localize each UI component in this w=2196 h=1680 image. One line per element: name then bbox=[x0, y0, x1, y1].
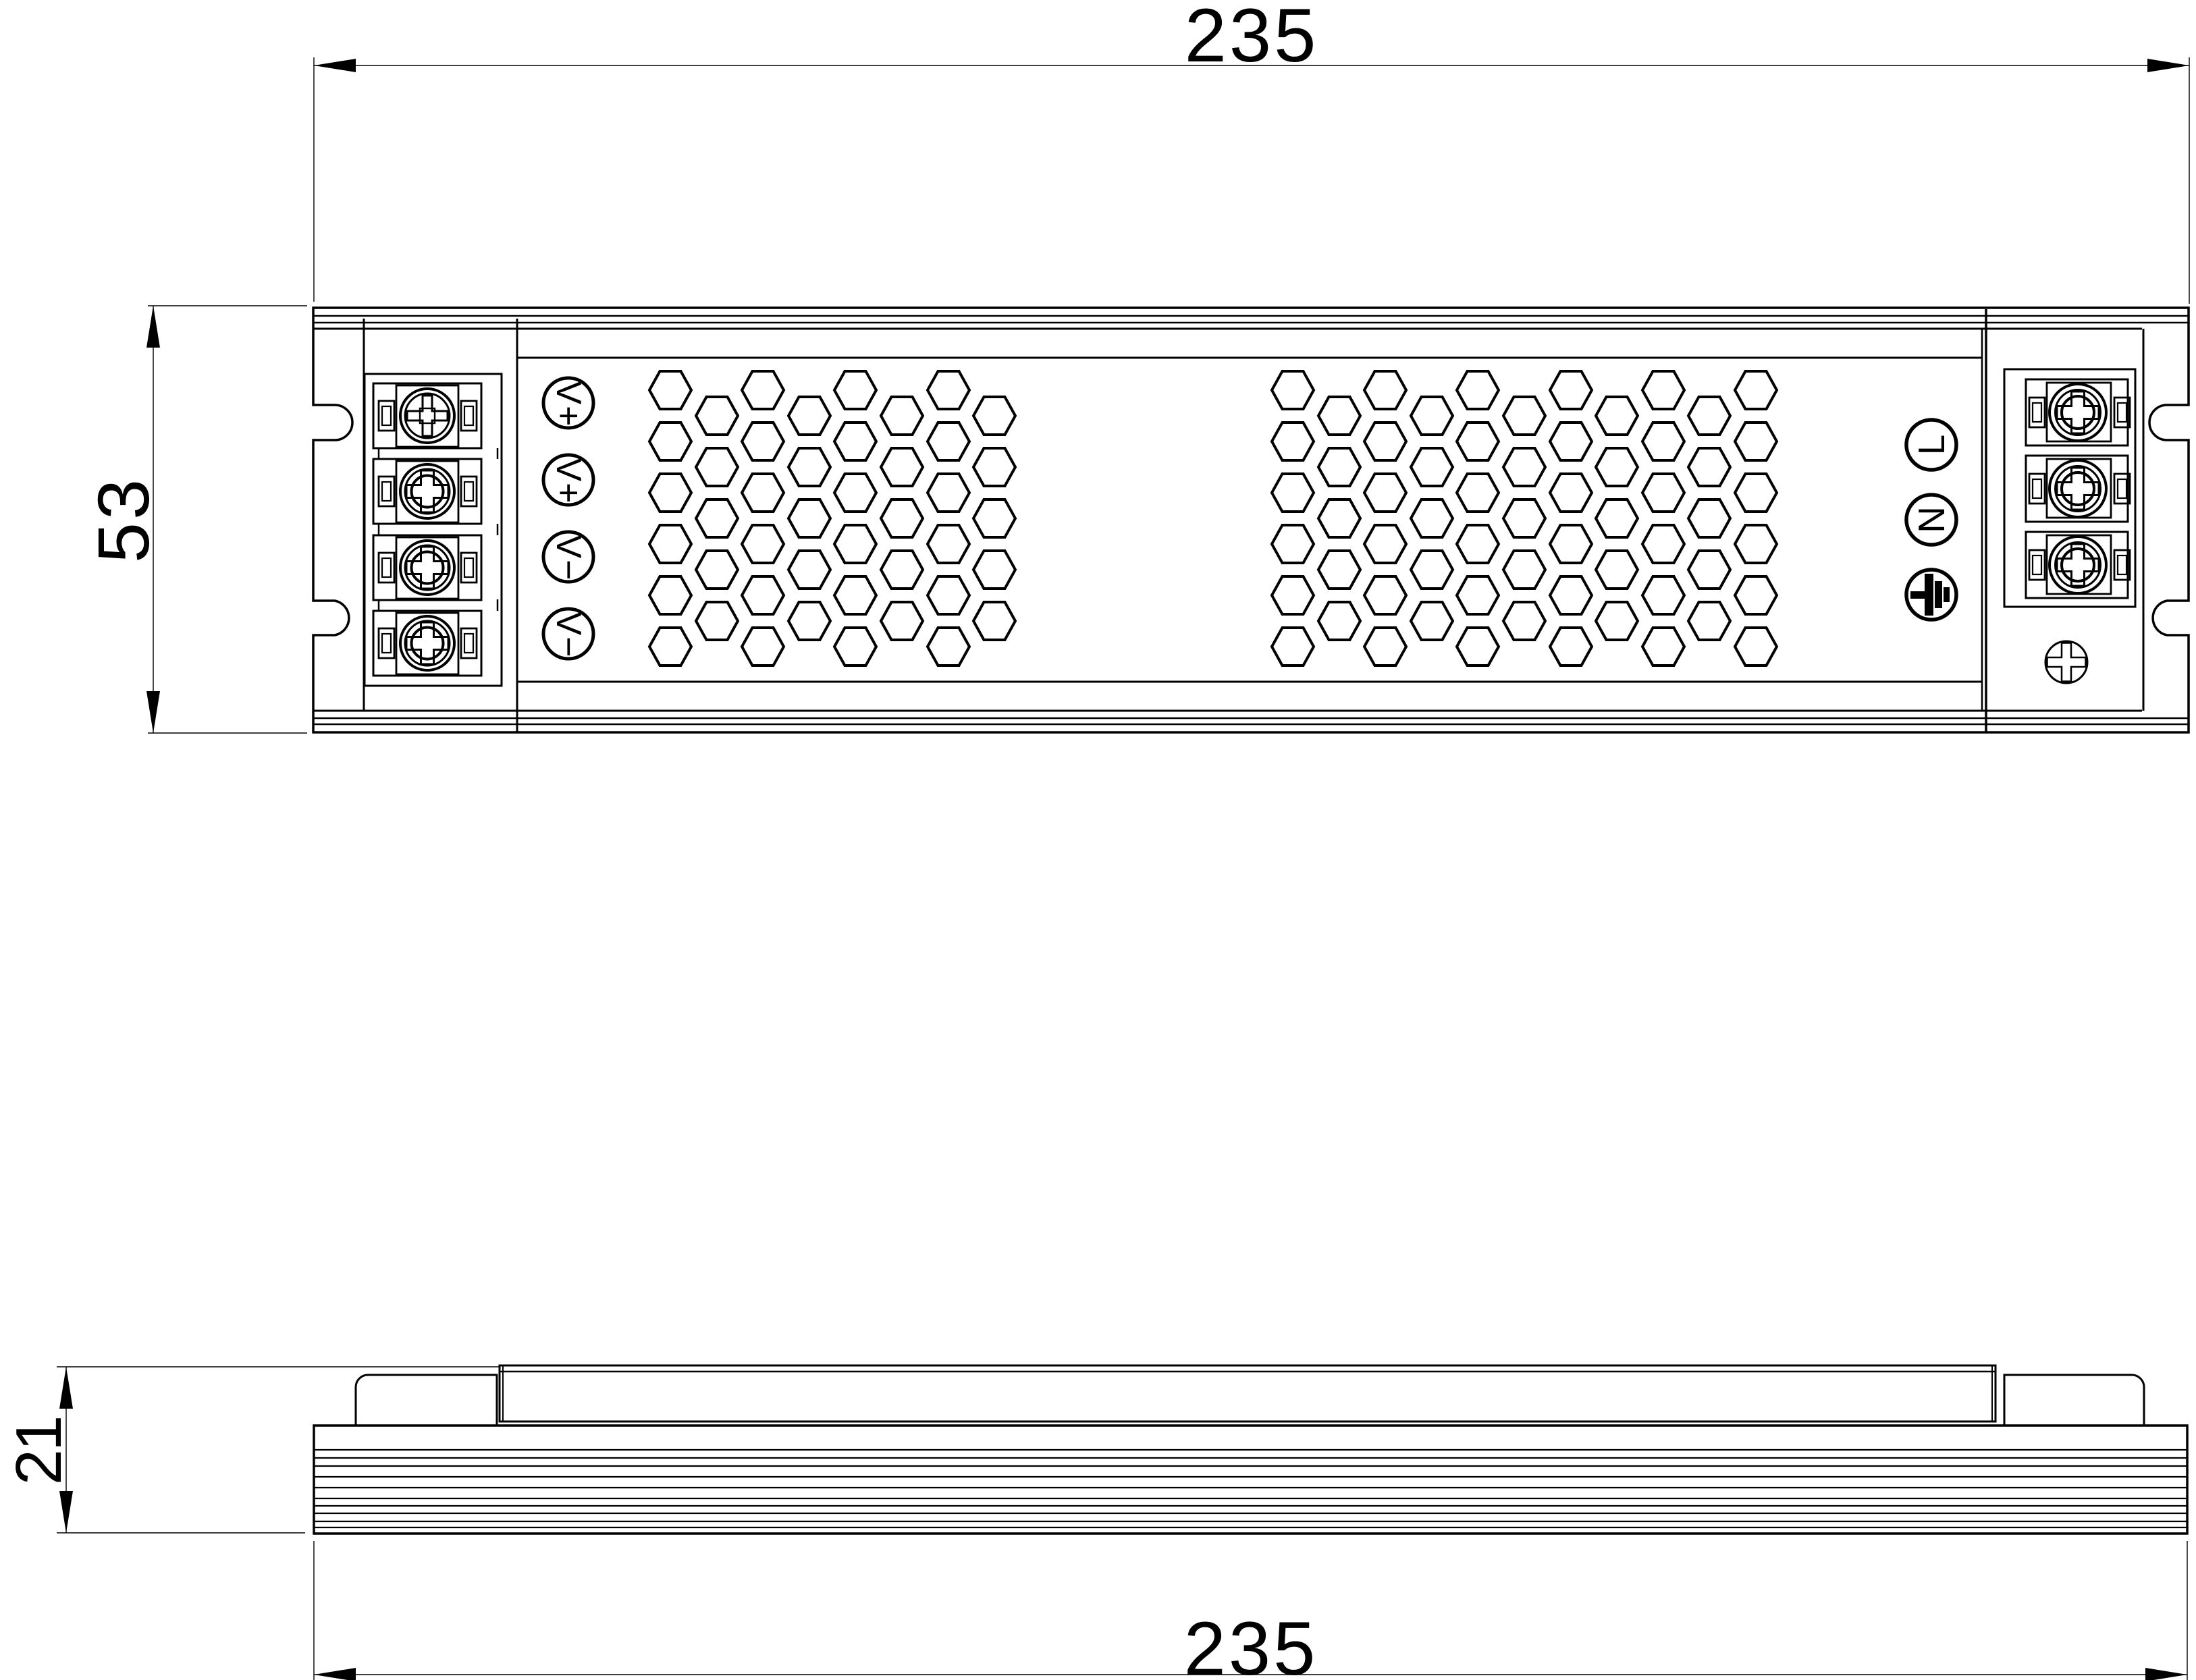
svg-text:235: 235 bbox=[1185, 0, 1319, 78]
svg-text:235: 235 bbox=[1184, 1606, 1318, 1680]
svg-text:V−: V− bbox=[549, 535, 588, 581]
svg-text:V−: V− bbox=[549, 612, 588, 658]
svg-text:N: N bbox=[1910, 506, 1952, 533]
svg-text:53: 53 bbox=[82, 477, 164, 563]
svg-text:V+: V+ bbox=[549, 381, 588, 427]
svg-text:L: L bbox=[1910, 435, 1952, 456]
svg-text:V+: V+ bbox=[549, 458, 588, 504]
svg-text:21: 21 bbox=[3, 1417, 75, 1486]
